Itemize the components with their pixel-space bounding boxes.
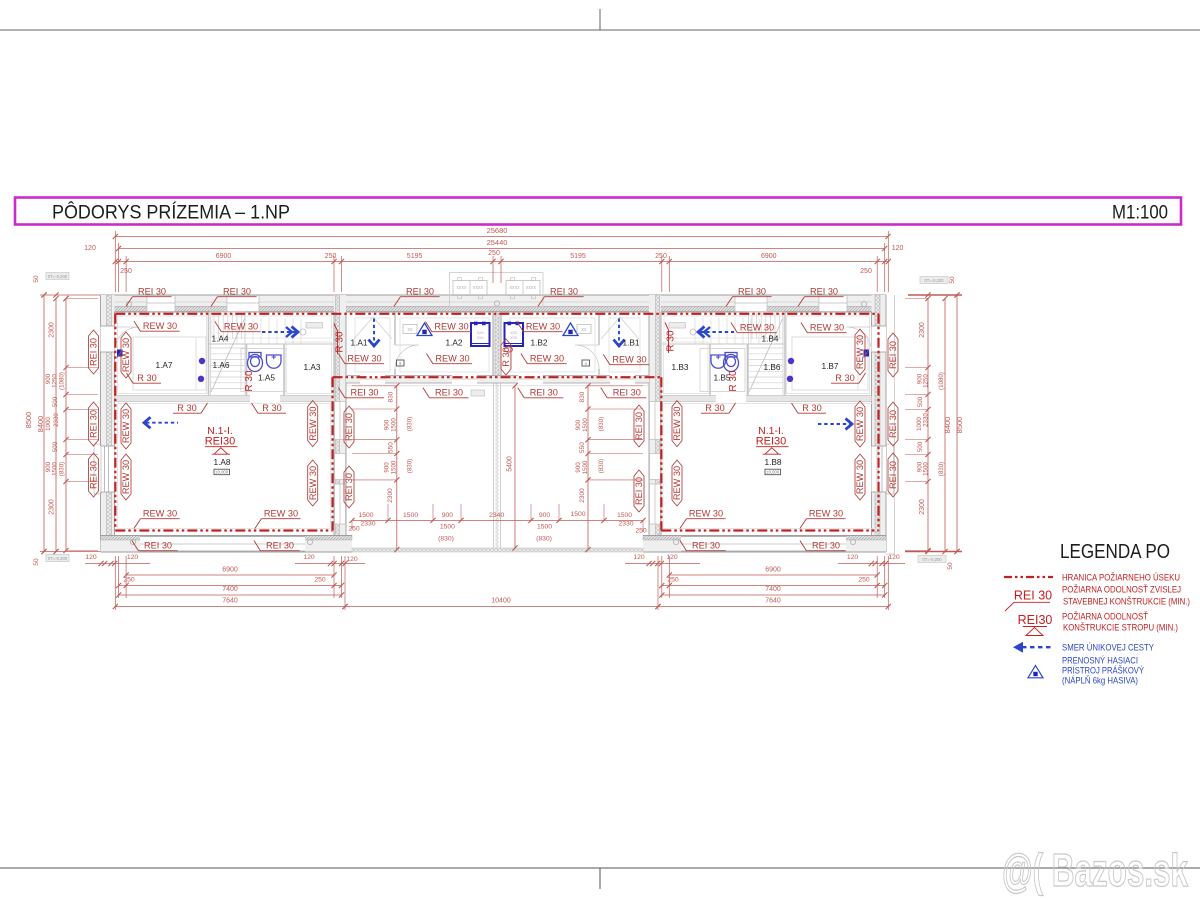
- svg-text:1.A2: 1.A2: [445, 338, 462, 348]
- svg-text:900: 900: [442, 512, 454, 519]
- svg-text:250: 250: [314, 577, 326, 584]
- svg-text:50: 50: [947, 562, 954, 570]
- svg-text:REI 30: REI 30: [344, 413, 354, 441]
- svg-text:R 30: R 30: [666, 330, 677, 352]
- svg-text:1.A7: 1.A7: [155, 360, 172, 370]
- svg-text:xxxx: xxxx: [526, 285, 537, 291]
- svg-text:8400: 8400: [36, 416, 45, 433]
- svg-text:120: 120: [892, 245, 904, 252]
- svg-text:KONŠTRUKCIE STROPU (MIN.): KONŠTRUKCIE STROPU (MIN.): [1063, 623, 1178, 633]
- svg-text:PRENOSNÝ HASIACI: PRENOSNÝ HASIACI: [1062, 656, 1138, 666]
- svg-text:2330: 2330: [618, 521, 633, 528]
- svg-text:1500: 1500: [582, 460, 589, 474]
- svg-text:POŽIARNA ODOLNOSŤ: POŽIARNA ODOLNOSŤ: [1062, 612, 1148, 622]
- svg-text:6900: 6900: [216, 253, 232, 260]
- svg-text:REW 30: REW 30: [526, 322, 560, 332]
- svg-text:PRÍSTROJ PRÁŠKOVÝ: PRÍSTROJ PRÁŠKOVÝ: [1062, 666, 1144, 676]
- svg-text:REI 30: REI 30: [435, 388, 463, 398]
- svg-text:1250: 1250: [923, 374, 930, 388]
- svg-text:500: 500: [917, 441, 924, 452]
- svg-text:REW 30: REW 30: [855, 407, 865, 441]
- svg-text:500: 500: [917, 396, 924, 407]
- svg-text:REW 30: REW 30: [121, 460, 131, 494]
- svg-text:250: 250: [858, 577, 870, 584]
- svg-text:REW 30: REW 30: [855, 335, 865, 369]
- svg-text:REI 30: REI 30: [350, 388, 378, 398]
- svg-text:xxxx: xxxx: [457, 285, 468, 291]
- svg-text:120: 120: [85, 554, 97, 561]
- svg-text:0T=-0,200: 0T=-0,200: [48, 274, 68, 279]
- svg-text:POŽIARNA ODOLNOSŤ ZVISLEJ: POŽIARNA ODOLNOSŤ ZVISLEJ: [1062, 585, 1181, 595]
- svg-text:REI 30: REI 30: [613, 388, 641, 398]
- svg-text:R 30: R 30: [501, 347, 511, 366]
- svg-text:1.B6: 1.B6: [763, 362, 780, 372]
- svg-text:1000: 1000: [45, 417, 52, 431]
- svg-text:120: 120: [303, 554, 315, 561]
- svg-text:REI 30: REI 30: [406, 287, 434, 297]
- svg-text:250: 250: [860, 268, 872, 275]
- svg-text:REI 30: REI 30: [1014, 589, 1052, 603]
- svg-text:120: 120: [127, 554, 139, 561]
- svg-text:830: 830: [388, 391, 395, 402]
- svg-text:REI30: REI30: [756, 436, 787, 448]
- svg-text:REI 30: REI 30: [888, 341, 898, 369]
- svg-text:50: 50: [33, 275, 40, 283]
- svg-text:REW 30: REW 30: [121, 409, 131, 443]
- svg-text:5195: 5195: [407, 253, 423, 260]
- svg-text:(830): (830): [536, 536, 552, 543]
- svg-text:8500: 8500: [955, 417, 964, 434]
- svg-text:R 30: R 30: [335, 331, 346, 353]
- svg-text:6900: 6900: [222, 567, 238, 574]
- svg-text:REW 30: REW 30: [740, 323, 774, 333]
- svg-text:R 30: R 30: [705, 403, 724, 413]
- svg-text:1.A6: 1.A6: [212, 360, 229, 370]
- svg-text:2300: 2300: [919, 322, 926, 338]
- svg-text:120: 120: [633, 554, 645, 561]
- svg-text:R 30: R 30: [802, 403, 821, 413]
- svg-text:M1:100: M1:100: [1112, 203, 1168, 224]
- svg-text:250: 250: [348, 526, 360, 533]
- svg-text:2330: 2330: [923, 413, 930, 427]
- svg-text:2330: 2330: [360, 521, 375, 528]
- svg-text:1500: 1500: [391, 460, 398, 474]
- svg-text:xx: xx: [408, 327, 414, 333]
- svg-text:xxxx: xxxx: [510, 285, 521, 291]
- svg-text:900: 900: [575, 419, 582, 430]
- svg-text:0T=-0,200: 0T=-0,200: [48, 556, 68, 561]
- svg-text:xxx: xxx: [510, 335, 518, 340]
- svg-text:(1080): (1080): [59, 372, 66, 390]
- svg-text:2330: 2330: [53, 413, 60, 427]
- svg-text:500: 500: [52, 441, 59, 452]
- svg-text:REI 30: REI 30: [138, 287, 166, 297]
- svg-text:PÔDORYS PRÍZEMIA – 1.NP: PÔDORYS PRÍZEMIA – 1.NP: [52, 202, 290, 224]
- svg-text:250: 250: [123, 577, 135, 584]
- svg-text:(830): (830): [938, 462, 945, 476]
- svg-text:REI 30: REI 30: [344, 473, 354, 501]
- svg-text:120: 120: [847, 554, 859, 561]
- svg-text:(NÁPLŇ 6kg HASIVA): (NÁPLŇ 6kg HASIVA): [1062, 676, 1138, 686]
- svg-text:250: 250: [655, 253, 667, 260]
- svg-text:2300: 2300: [49, 499, 56, 515]
- svg-text:(830): (830): [59, 462, 66, 476]
- svg-text:REI 30: REI 30: [888, 410, 898, 438]
- svg-text:1500: 1500: [537, 524, 552, 531]
- svg-text:REI 30: REI 30: [89, 410, 99, 438]
- svg-text:5400: 5400: [507, 456, 514, 472]
- svg-text:REI 30: REI 30: [738, 287, 766, 297]
- svg-text:REW 30: REW 30: [855, 460, 865, 494]
- svg-text:REW 30: REW 30: [347, 354, 381, 364]
- svg-text:250: 250: [488, 250, 500, 257]
- svg-text:REW 30: REW 30: [810, 323, 844, 333]
- svg-text:6900: 6900: [765, 567, 781, 574]
- svg-text:120: 120: [666, 554, 678, 561]
- svg-text:900: 900: [575, 462, 582, 473]
- svg-text:REI 30: REI 30: [812, 541, 840, 551]
- svg-text:2300: 2300: [579, 488, 586, 503]
- svg-text:REW 30: REW 30: [264, 509, 298, 519]
- svg-text:(830): (830): [598, 459, 605, 473]
- svg-text:2300: 2300: [387, 488, 394, 503]
- svg-text:6900: 6900: [761, 253, 777, 260]
- svg-text:REW 30: REW 30: [121, 338, 131, 372]
- svg-text:1.A8: 1.A8: [213, 457, 230, 467]
- svg-text:120: 120: [84, 245, 96, 252]
- svg-text:120: 120: [888, 554, 900, 561]
- svg-text:REI 30: REI 30: [692, 541, 720, 551]
- svg-text:(830): (830): [407, 417, 414, 431]
- svg-text:1.A4: 1.A4: [211, 334, 228, 344]
- svg-text:550: 550: [579, 442, 586, 453]
- svg-text:REW 30: REW 30: [434, 322, 468, 332]
- svg-text:REI 30: REI 30: [888, 461, 898, 489]
- svg-text:REW 30: REW 30: [143, 321, 177, 331]
- svg-text:REW 30: REW 30: [672, 406, 682, 440]
- svg-text:STAVEBNEJ KONŠTRUKCIE (MIN.): STAVEBNEJ KONŠTRUKCIE (MIN.): [1063, 597, 1190, 607]
- svg-text:R 30: R 30: [262, 403, 281, 413]
- svg-text:REW 30: REW 30: [809, 509, 843, 519]
- svg-text:REW 30: REW 30: [689, 509, 723, 519]
- svg-text:1500: 1500: [440, 524, 455, 531]
- svg-text:900: 900: [384, 419, 391, 430]
- svg-text:REI 30: REI 30: [89, 338, 99, 366]
- svg-text:2300: 2300: [49, 322, 56, 338]
- svg-text:SMER ÚNIKOVEJ CESTY: SMER ÚNIKOVEJ CESTY: [1062, 642, 1154, 652]
- svg-text:REI30: REI30: [205, 436, 236, 448]
- svg-text:REW 30: REW 30: [308, 466, 318, 500]
- svg-text:7640: 7640: [765, 598, 781, 605]
- svg-text:7400: 7400: [222, 586, 238, 593]
- svg-text:REI 30: REI 30: [144, 541, 172, 551]
- svg-text:REI 30: REI 30: [266, 541, 294, 551]
- svg-text:8400: 8400: [943, 417, 952, 434]
- svg-text:REI 30: REI 30: [810, 287, 838, 297]
- svg-text:REW 30: REW 30: [435, 354, 469, 364]
- svg-text:REI 30: REI 30: [89, 461, 99, 489]
- svg-text:1.B1: 1.B1: [622, 338, 639, 348]
- svg-text:1500: 1500: [391, 418, 398, 432]
- svg-text:REI30: REI30: [1018, 613, 1053, 627]
- svg-text:1.A3: 1.A3: [303, 362, 320, 372]
- svg-text:1500: 1500: [52, 462, 59, 476]
- svg-text:0T=-0,200: 0T=-0,200: [922, 557, 942, 562]
- svg-text:1.B7: 1.B7: [821, 361, 838, 371]
- svg-text:1500: 1500: [582, 418, 589, 432]
- svg-text:1500: 1500: [358, 512, 373, 519]
- svg-text:50: 50: [33, 558, 40, 566]
- svg-text:(830): (830): [438, 536, 454, 543]
- svg-text:REW 30: REW 30: [308, 406, 318, 440]
- svg-text:R 30: R 30: [137, 373, 156, 383]
- svg-text:REW 30: REW 30: [143, 509, 177, 519]
- svg-text:R 30: R 30: [177, 403, 196, 413]
- svg-text:R 30: R 30: [728, 370, 739, 392]
- svg-text:10400: 10400: [491, 598, 511, 605]
- svg-text:(830): (830): [407, 459, 414, 473]
- svg-text:1.A5: 1.A5: [258, 373, 275, 383]
- svg-text:±0,000: ±0,000: [766, 469, 779, 474]
- svg-text:xxx: xxx: [477, 335, 485, 340]
- svg-text:REW 30: REW 30: [224, 322, 258, 332]
- svg-text:REI 30: REI 30: [530, 388, 558, 398]
- svg-text:R 30: R 30: [244, 370, 255, 392]
- svg-text:25680: 25680: [487, 226, 508, 235]
- svg-text:7640: 7640: [222, 598, 238, 605]
- svg-text:500: 500: [52, 396, 59, 407]
- svg-text:0T=-0,200: 0T=-0,200: [924, 278, 944, 283]
- svg-text:LEGENDA PO: LEGENDA PO: [1060, 541, 1170, 563]
- svg-text:5195: 5195: [570, 253, 586, 260]
- svg-text:830: 830: [579, 391, 586, 402]
- svg-text:1.A1: 1.A1: [350, 338, 367, 348]
- svg-text:1.B2: 1.B2: [530, 338, 547, 348]
- svg-text:25440: 25440: [487, 238, 508, 247]
- svg-text:2300: 2300: [919, 499, 926, 515]
- svg-text:REI 30: REI 30: [634, 412, 644, 440]
- svg-text:120: 120: [346, 556, 358, 563]
- svg-text:1.B8: 1.B8: [764, 457, 781, 467]
- svg-text:REW 30: REW 30: [612, 355, 646, 365]
- svg-text:REI 30: REI 30: [550, 287, 578, 297]
- svg-text:50: 50: [949, 276, 956, 284]
- svg-text:xxxx: xxxx: [473, 285, 484, 291]
- svg-text:550: 550: [388, 442, 395, 453]
- svg-text:900: 900: [384, 462, 391, 473]
- svg-text:1250: 1250: [52, 374, 59, 388]
- svg-text:7400: 7400: [765, 586, 781, 593]
- svg-text:REI 30: REI 30: [223, 287, 251, 297]
- svg-text:1500: 1500: [570, 511, 585, 518]
- svg-text:250: 250: [325, 253, 337, 260]
- svg-text:1.B4: 1.B4: [761, 334, 778, 344]
- svg-text:xx: xx: [582, 327, 588, 333]
- svg-text:2340: 2340: [489, 512, 504, 519]
- svg-text:REW 30: REW 30: [530, 354, 564, 364]
- svg-text:1500: 1500: [617, 512, 632, 519]
- svg-text:(830): (830): [598, 417, 605, 431]
- svg-text:@( Bazos.sk: @( Bazos.sk: [1002, 844, 1188, 896]
- svg-text:REI 30: REI 30: [634, 477, 644, 505]
- svg-text:REW 30: REW 30: [672, 466, 682, 500]
- svg-text:1500: 1500: [923, 462, 930, 476]
- svg-text:1500: 1500: [403, 512, 418, 519]
- svg-text:(1080): (1080): [938, 372, 945, 390]
- svg-text:250: 250: [635, 528, 647, 535]
- svg-text:8500: 8500: [24, 412, 33, 429]
- svg-text:±0,000: ±0,000: [215, 469, 228, 474]
- svg-text:1.B3: 1.B3: [671, 362, 688, 372]
- svg-text:HRANICA POŽIARNEHO ÚSEKU: HRANICA POŽIARNEHO ÚSEKU: [1062, 573, 1180, 583]
- svg-text:900: 900: [539, 512, 551, 519]
- svg-text:R 30: R 30: [835, 373, 854, 383]
